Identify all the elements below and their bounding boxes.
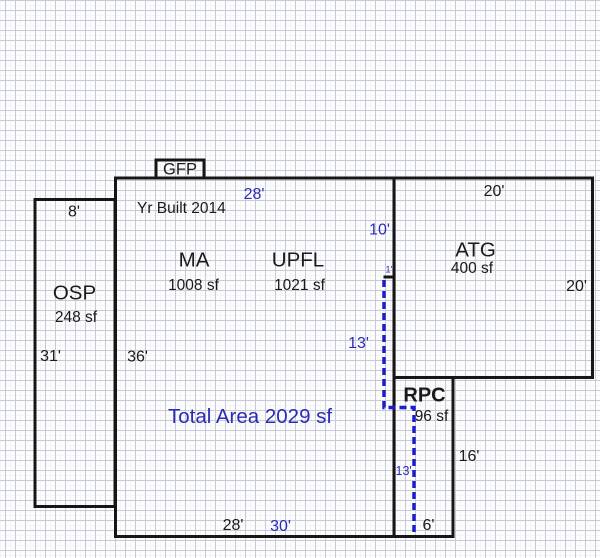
svg-text:400 sf: 400 sf — [451, 260, 494, 277]
svg-text:13': 13' — [396, 464, 412, 478]
svg-text:20': 20' — [484, 183, 505, 200]
svg-text:ATG: ATG — [455, 239, 496, 262]
svg-text:1008 sf: 1008 sf — [168, 277, 220, 294]
svg-text:28': 28' — [244, 186, 265, 203]
svg-text:10': 10' — [369, 222, 390, 239]
svg-text:8': 8' — [68, 204, 80, 221]
svg-text:16': 16' — [459, 448, 480, 465]
svg-text:GFP: GFP — [163, 161, 197, 179]
svg-text:OSP: OSP — [53, 282, 96, 305]
svg-text:248 sf: 248 sf — [55, 309, 98, 326]
svg-text:MA: MA — [179, 249, 210, 272]
svg-text:Yr Built 2014: Yr Built 2014 — [137, 200, 226, 217]
svg-text:UPFL: UPFL — [272, 249, 324, 272]
svg-text:20': 20' — [566, 278, 587, 295]
svg-text:96 sf: 96 sf — [415, 408, 449, 425]
svg-text:36': 36' — [127, 349, 148, 366]
svg-text:13': 13' — [348, 335, 369, 352]
svg-text:30': 30' — [270, 518, 291, 535]
svg-text:Total Area 2029 sf: Total Area 2029 sf — [168, 405, 332, 428]
svg-text:6': 6' — [423, 517, 435, 534]
svg-text:28': 28' — [223, 517, 244, 534]
svg-text:RPC: RPC — [403, 385, 445, 407]
svg-text:1021 sf: 1021 sf — [274, 277, 326, 294]
svg-text:1': 1' — [386, 265, 393, 275]
svg-text:31': 31' — [40, 348, 61, 365]
